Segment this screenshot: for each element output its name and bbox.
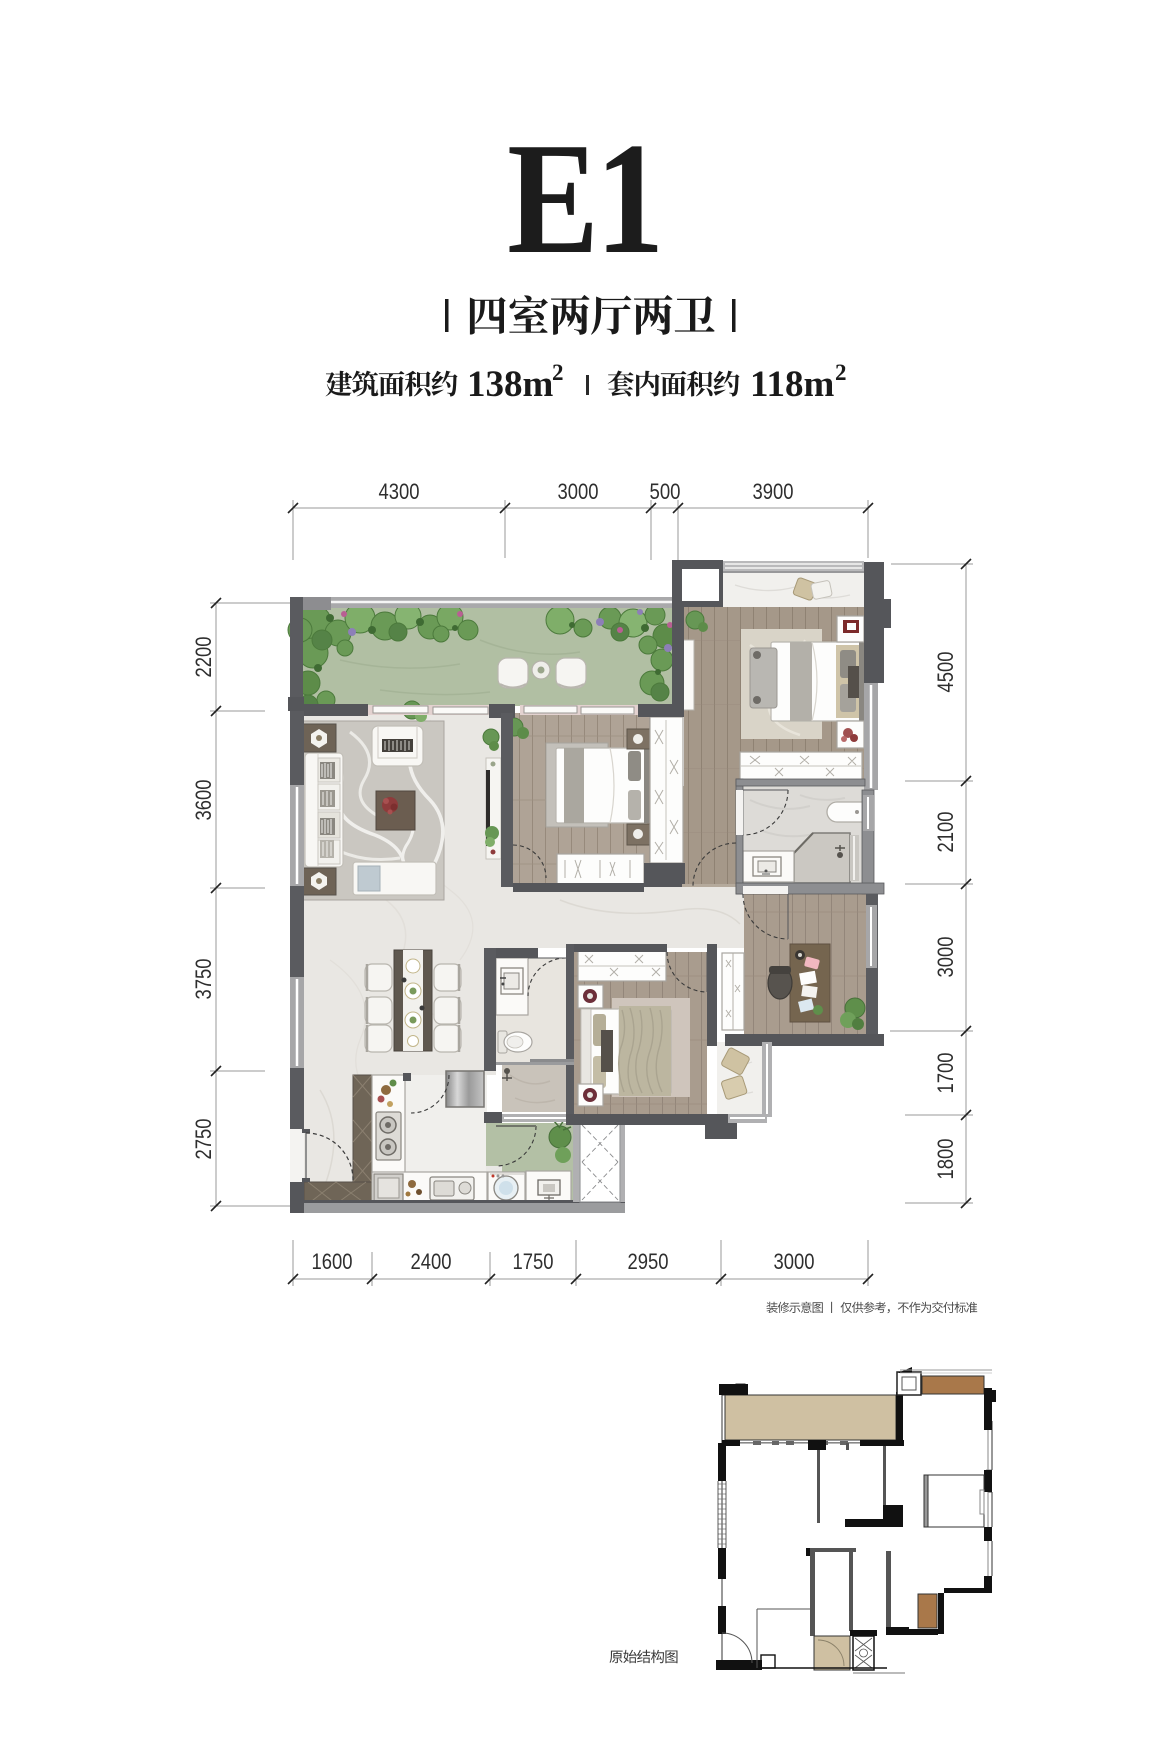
svg-text:1750: 1750 bbox=[513, 1249, 554, 1274]
svg-text:3750: 3750 bbox=[191, 959, 216, 1000]
svg-text:2: 2 bbox=[552, 360, 564, 385]
svg-text:4300: 4300 bbox=[379, 479, 420, 504]
svg-text:2750: 2750 bbox=[191, 1119, 216, 1160]
svg-text:1600: 1600 bbox=[312, 1249, 353, 1274]
svg-text:3600: 3600 bbox=[191, 780, 216, 821]
svg-text:118m: 118m bbox=[750, 364, 834, 405]
svg-text:2: 2 bbox=[835, 360, 847, 385]
svg-text:1700: 1700 bbox=[933, 1053, 958, 1094]
svg-text:1800: 1800 bbox=[933, 1139, 958, 1180]
svg-text:3900: 3900 bbox=[753, 479, 794, 504]
svg-text:500: 500 bbox=[650, 479, 681, 504]
svg-text:3000: 3000 bbox=[933, 937, 958, 978]
svg-text:4500: 4500 bbox=[933, 652, 958, 693]
svg-text:3000: 3000 bbox=[774, 1249, 815, 1274]
svg-text:138m: 138m bbox=[467, 364, 554, 405]
svg-text:2400: 2400 bbox=[411, 1249, 452, 1274]
svg-text:3000: 3000 bbox=[558, 479, 599, 504]
svg-text:2100: 2100 bbox=[933, 812, 958, 853]
svg-text:2950: 2950 bbox=[628, 1249, 669, 1274]
svg-text:2200: 2200 bbox=[191, 637, 216, 678]
